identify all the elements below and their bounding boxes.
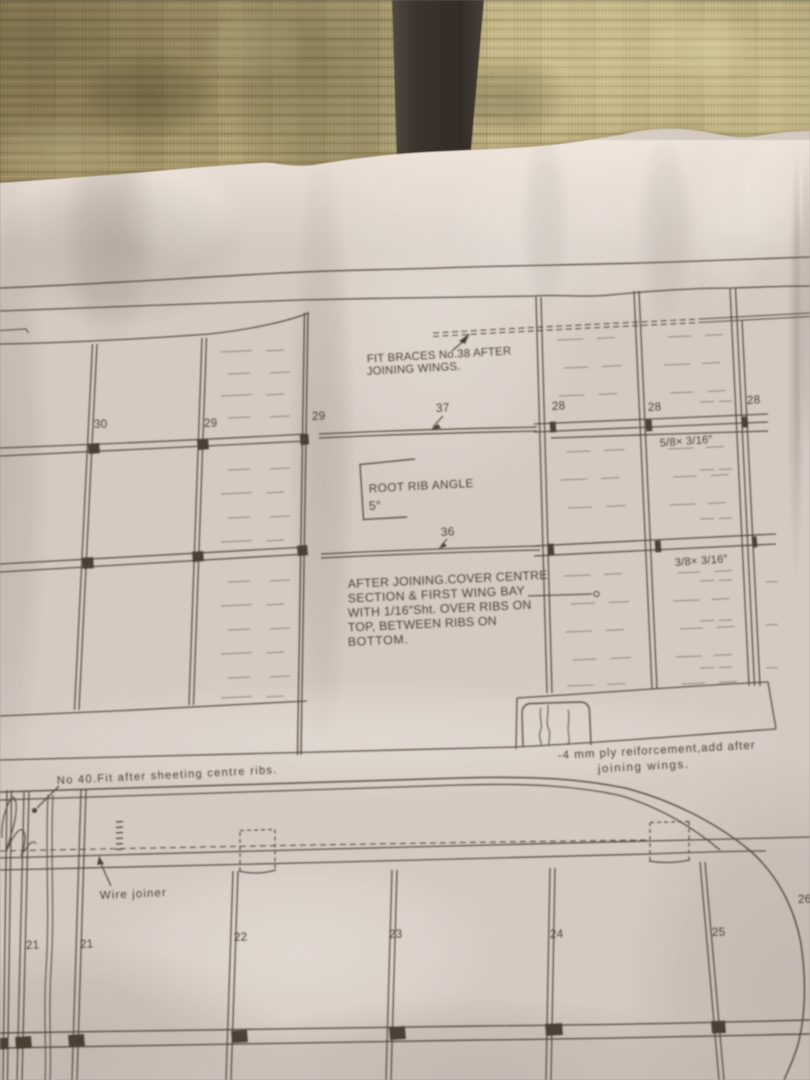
svg-text:29: 29 (204, 416, 218, 430)
svg-text:24: 24 (550, 927, 564, 941)
svg-text:22: 22 (234, 930, 248, 944)
svg-text:28: 28 (551, 398, 565, 413)
svg-text:26: 26 (798, 892, 810, 906)
svg-text:5°: 5° (368, 498, 381, 513)
svg-text:23: 23 (389, 927, 403, 941)
svg-text:28: 28 (746, 392, 760, 407)
svg-text:21: 21 (80, 937, 94, 951)
svg-text:BOTTOM.: BOTTOM. (348, 632, 409, 649)
svg-text:36: 36 (440, 524, 455, 539)
svg-text:25: 25 (712, 925, 726, 939)
svg-text:29: 29 (312, 409, 326, 423)
svg-text:37: 37 (435, 400, 450, 415)
svg-text:30: 30 (94, 417, 108, 431)
svg-text:21: 21 (26, 938, 40, 952)
svg-text:28: 28 (647, 399, 661, 414)
